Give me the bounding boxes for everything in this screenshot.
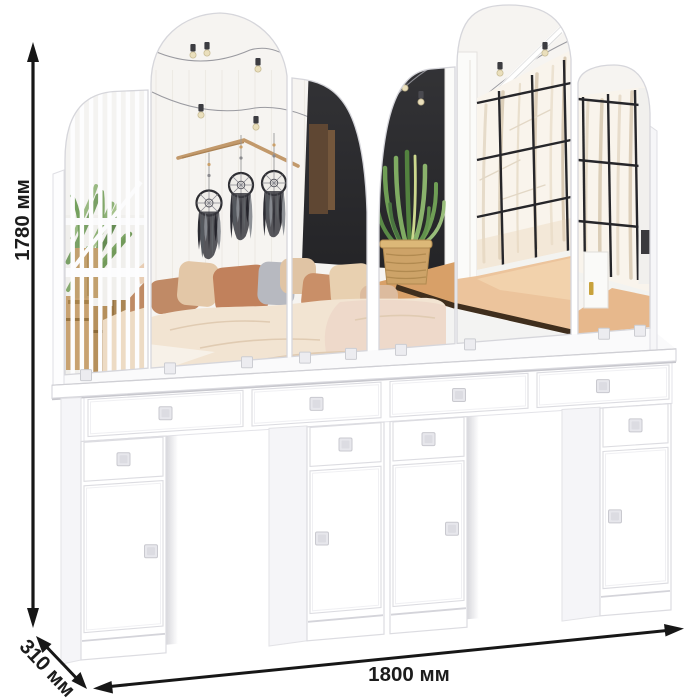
svg-text:1780 мм: 1780 мм <box>11 179 34 261</box>
svg-text:1800 мм: 1800 мм <box>368 663 450 686</box>
